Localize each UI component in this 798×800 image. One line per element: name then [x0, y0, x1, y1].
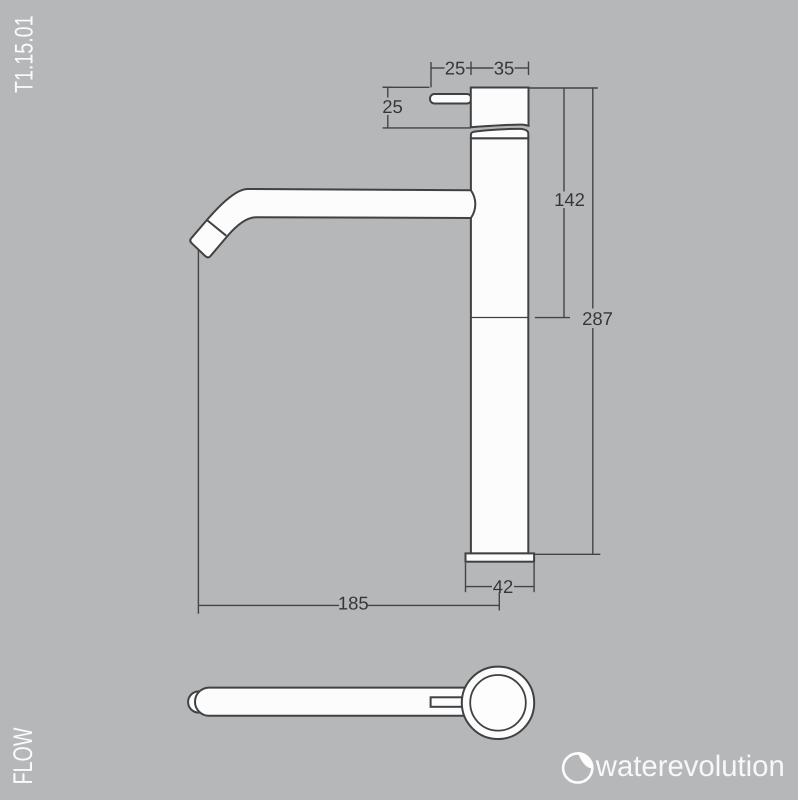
svg-text:142: 142 [554, 189, 585, 210]
svg-text:T1.15.01: T1.15.01 [11, 16, 39, 94]
svg-text:185: 185 [338, 593, 369, 614]
svg-text:FLOW: FLOW [8, 727, 38, 784]
svg-text:35: 35 [494, 58, 515, 79]
svg-text:25: 25 [445, 58, 466, 79]
svg-text:waterevolution: waterevolution [595, 750, 785, 783]
svg-text:42: 42 [493, 576, 514, 597]
svg-text:287: 287 [582, 308, 613, 329]
svg-text:25: 25 [382, 96, 403, 117]
